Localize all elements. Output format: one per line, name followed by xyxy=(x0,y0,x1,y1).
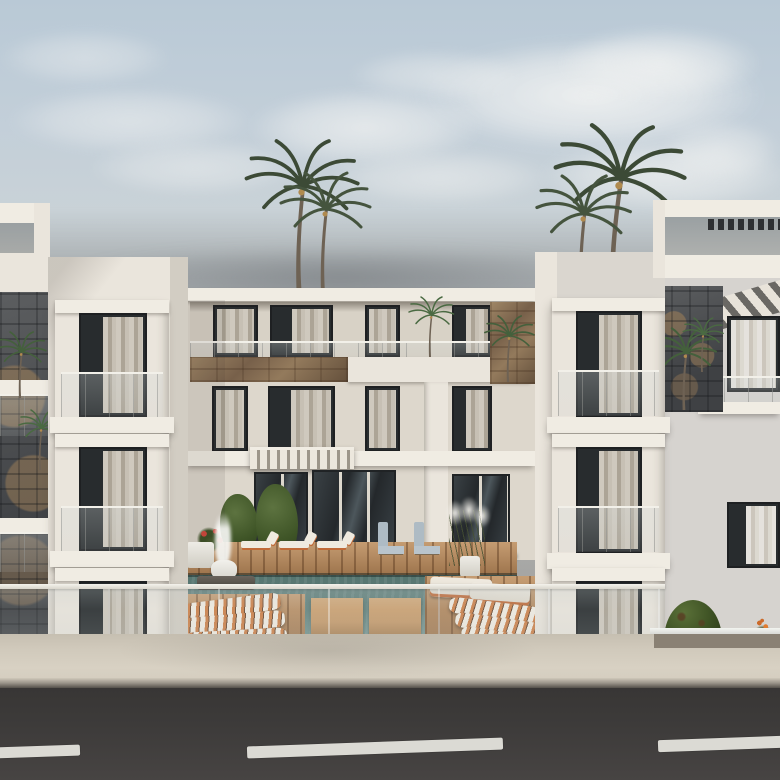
balcony-slab xyxy=(547,553,670,569)
sun-lounger xyxy=(241,532,279,556)
window xyxy=(365,386,400,452)
balcony-header xyxy=(55,434,169,447)
floor-slab xyxy=(185,451,535,466)
roof-opening xyxy=(0,223,34,253)
curtain xyxy=(466,390,488,448)
sun-lounger xyxy=(317,532,355,556)
curtain xyxy=(291,390,331,448)
lounger-cushion xyxy=(279,541,309,548)
balcony-glass-railing xyxy=(0,532,48,572)
lounger-cushion xyxy=(414,546,440,554)
pampas-plume xyxy=(473,504,491,528)
sun-lounger-grey xyxy=(374,522,406,560)
fountain-jet xyxy=(215,512,231,566)
parapet xyxy=(185,288,535,301)
window xyxy=(268,386,335,452)
window xyxy=(452,386,492,452)
fountain-planter xyxy=(186,542,214,568)
lounger-cushion xyxy=(241,541,271,548)
balcony-slab xyxy=(50,551,174,567)
balcony xyxy=(552,298,665,434)
pampas-pot xyxy=(460,556,480,578)
balcony-header xyxy=(552,568,665,581)
balcony-glass-railing xyxy=(61,506,163,551)
lounger-cushion xyxy=(317,541,347,548)
road xyxy=(0,688,780,780)
balcony-header xyxy=(55,568,169,581)
curb xyxy=(0,678,780,688)
entrance-canopy xyxy=(250,447,354,469)
balcony-slab xyxy=(0,518,48,532)
cloud xyxy=(660,120,780,180)
balcony xyxy=(55,300,169,434)
balcony-slab xyxy=(0,380,48,394)
architectural-render-scene xyxy=(0,0,780,780)
balcony xyxy=(55,434,169,568)
balcony-header xyxy=(552,298,665,311)
window xyxy=(727,502,780,568)
balcony-glass-railing xyxy=(0,394,48,436)
ground-planter xyxy=(650,598,780,658)
lounger-backrest xyxy=(414,522,424,548)
balcony-slab xyxy=(50,417,174,433)
cloud xyxy=(330,150,550,205)
balcony-header xyxy=(552,434,665,447)
curtain xyxy=(746,506,776,564)
balcony-glass-railing xyxy=(558,370,659,416)
balcony-header xyxy=(55,300,169,313)
wall-band xyxy=(0,253,40,295)
pergola-slats xyxy=(708,219,780,230)
glass-balustrade xyxy=(0,589,665,640)
sun-lounger xyxy=(279,532,317,556)
balcony xyxy=(552,434,665,570)
curtain xyxy=(369,390,396,448)
lounger-cushion xyxy=(378,546,404,554)
left-wing xyxy=(0,200,50,650)
balcony-glass-railing xyxy=(61,372,163,417)
stone-accent-wall xyxy=(490,302,535,384)
glass-railing xyxy=(190,341,535,358)
roof-post xyxy=(653,200,665,278)
cloud xyxy=(90,140,300,195)
right-roof-pergola xyxy=(653,200,780,278)
balcony-glass-railing xyxy=(558,506,659,552)
sun-lounger-grey xyxy=(410,522,442,560)
balcony-slab xyxy=(547,417,670,433)
cloud xyxy=(350,50,520,100)
lounger-backrest xyxy=(378,522,388,548)
cloud xyxy=(560,28,760,98)
cloud xyxy=(0,30,170,85)
planter-soil xyxy=(654,634,780,648)
